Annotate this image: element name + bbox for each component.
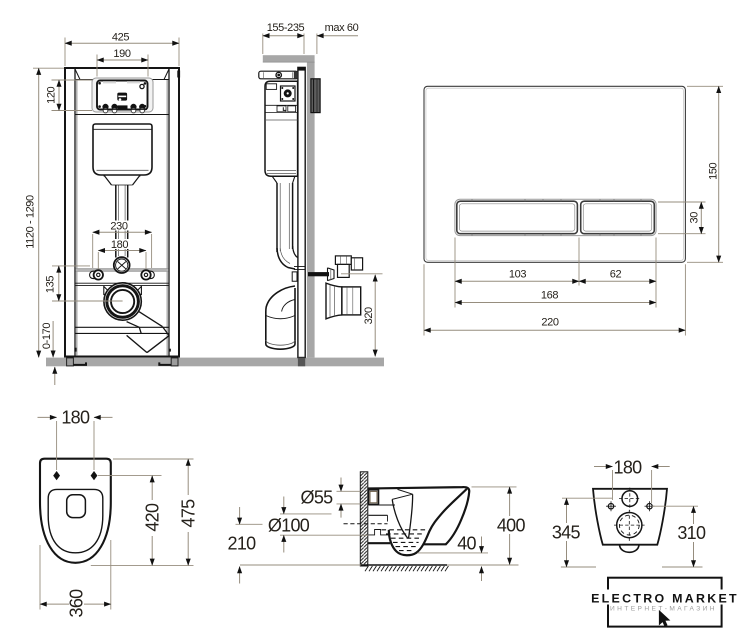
svg-text:0-170: 0-170 (41, 323, 53, 349)
svg-text:360: 360 (67, 589, 87, 618)
svg-text:103: 103 (509, 268, 526, 280)
svg-text:310: 310 (677, 523, 706, 543)
svg-text:475: 475 (179, 499, 199, 528)
svg-text:62: 62 (610, 268, 622, 280)
svg-text:320: 320 (363, 307, 375, 324)
svg-text:120: 120 (46, 86, 58, 103)
svg-text:210: 210 (228, 533, 257, 553)
svg-text:135: 135 (45, 276, 57, 293)
svg-text:155-235: 155-235 (267, 22, 305, 34)
svg-text:425: 425 (112, 32, 129, 44)
svg-text:230: 230 (110, 220, 127, 232)
svg-text:180: 180 (614, 458, 643, 478)
svg-text:168: 168 (541, 290, 558, 302)
svg-text:150: 150 (708, 162, 720, 179)
svg-text:ELECTRO MARKET: ELECTRO MARKET (591, 592, 739, 606)
svg-text:30: 30 (689, 212, 701, 224)
svg-text:180: 180 (111, 239, 128, 251)
svg-text:190: 190 (113, 48, 130, 60)
svg-text:400: 400 (497, 516, 526, 536)
svg-text:ИНТЕРНЕТ-МАГАЗИН: ИНТЕРНЕТ-МАГАЗИН (610, 606, 717, 613)
svg-text:345: 345 (552, 522, 581, 542)
svg-text:220: 220 (541, 316, 558, 328)
svg-text:Ø100: Ø100 (268, 515, 310, 535)
svg-text:40: 40 (457, 533, 476, 553)
svg-text:Ø55: Ø55 (301, 487, 334, 507)
svg-text:180: 180 (61, 408, 90, 428)
svg-text:max 60: max 60 (325, 22, 359, 34)
svg-text:1120 - 1290: 1120 - 1290 (25, 195, 37, 249)
svg-text:420: 420 (142, 503, 162, 532)
